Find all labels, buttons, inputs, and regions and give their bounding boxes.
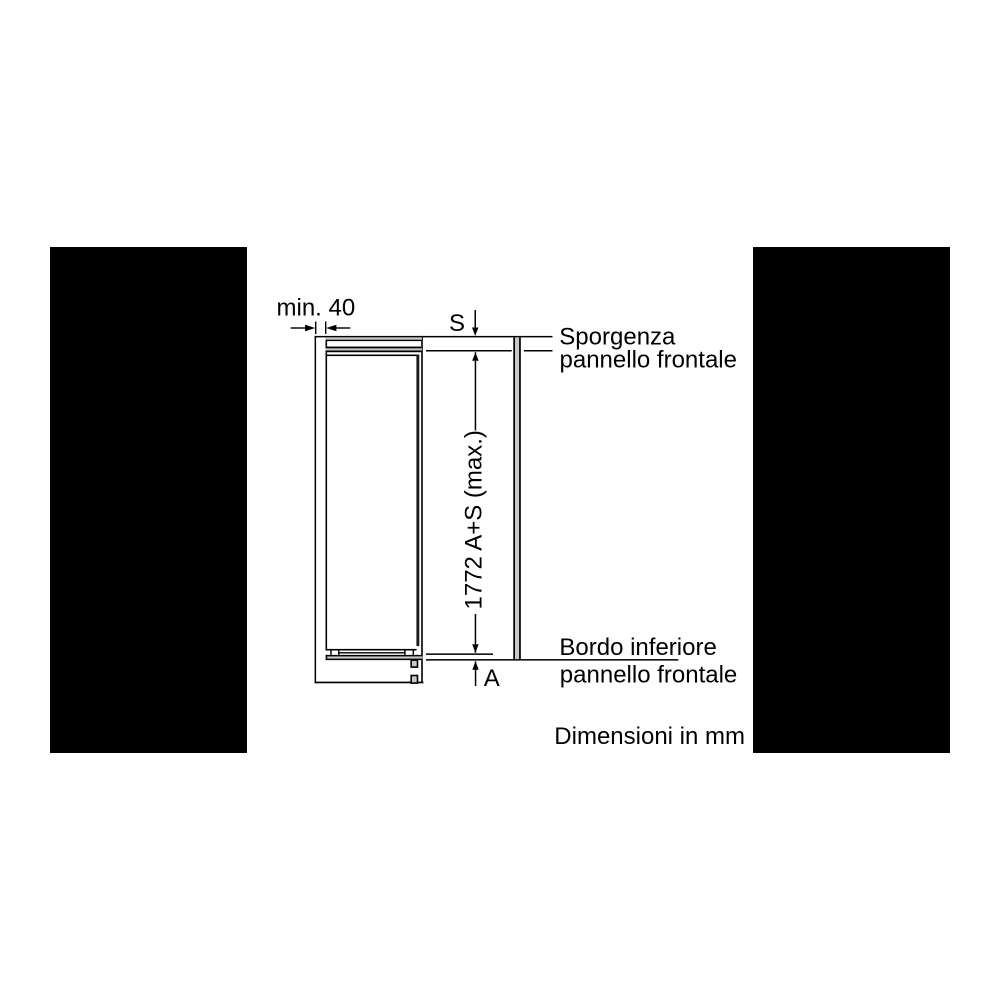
svg-text:min. 40: min. 40 [277, 295, 356, 322]
svg-text:S: S [449, 310, 465, 337]
svg-text:pannello frontale: pannello frontale [560, 347, 737, 374]
svg-text:1772 A+S (max.): 1772 A+S (max.) [461, 430, 488, 609]
svg-text:Bordo inferiore: Bordo inferiore [559, 634, 716, 661]
svg-text:A: A [484, 665, 500, 692]
svg-text:pannello frontale: pannello frontale [560, 662, 737, 689]
svg-text:Dimensioni in mm: Dimensioni in mm [554, 723, 745, 750]
